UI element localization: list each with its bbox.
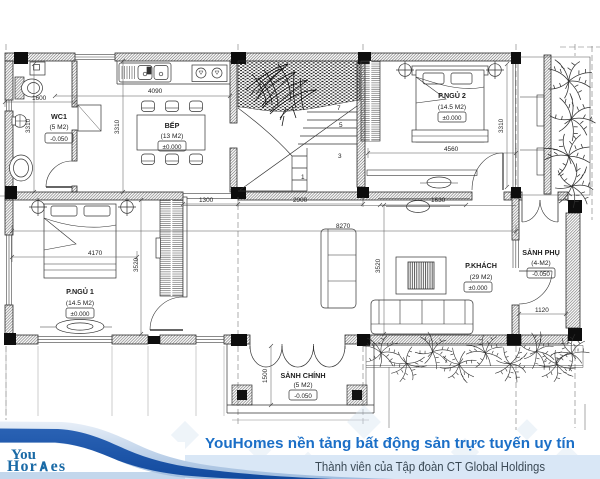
svg-text:1600: 1600 <box>32 95 47 102</box>
svg-text:(5 M2): (5 M2) <box>49 124 68 131</box>
svg-text:-0.050: -0.050 <box>50 136 68 143</box>
svg-text:(14.5 M2): (14.5 M2) <box>66 300 94 307</box>
svg-text:4090: 4090 <box>148 88 163 95</box>
svg-text:±0.000: ±0.000 <box>163 144 182 151</box>
svg-text:4560: 4560 <box>444 146 459 153</box>
svg-text:P.NGỦ 1: P.NGỦ 1 <box>66 287 94 296</box>
svg-text:±0.000: ±0.000 <box>469 285 488 292</box>
svg-text:SẢNH PHỤ: SẢNH PHỤ <box>522 248 560 257</box>
svg-text:3: 3 <box>338 153 342 160</box>
svg-text:(4-M2): (4-M2) <box>531 260 550 267</box>
svg-text:(13 M2): (13 M2) <box>161 133 184 140</box>
svg-text:3520: 3520 <box>133 257 140 272</box>
svg-text:5: 5 <box>339 122 343 129</box>
svg-text:BẾP: BẾP <box>165 120 180 130</box>
svg-text:3520: 3520 <box>375 258 382 273</box>
svg-text:-0.050: -0.050 <box>532 271 550 278</box>
svg-text:3310: 3310 <box>114 119 121 134</box>
svg-text:8270: 8270 <box>336 223 351 230</box>
svg-text:4170: 4170 <box>88 250 103 257</box>
svg-text:Thành viên của Tập đoàn CT Glo: Thành viên của Tập đoàn CT Global Holdin… <box>315 459 545 474</box>
svg-text:±0.000: ±0.000 <box>71 311 90 318</box>
svg-text:(29 M2): (29 M2) <box>470 274 493 281</box>
svg-text:WC1: WC1 <box>51 112 67 121</box>
svg-text:1500: 1500 <box>262 368 269 383</box>
svg-text:1300: 1300 <box>199 197 214 204</box>
svg-text:(5 M2): (5 M2) <box>293 382 312 389</box>
svg-text:-0.050: -0.050 <box>294 393 312 400</box>
svg-text:(14.5 M2): (14.5 M2) <box>438 104 466 111</box>
svg-text:3310: 3310 <box>25 118 32 133</box>
svg-text:3310: 3310 <box>498 118 505 133</box>
svg-text:2900: 2900 <box>293 197 308 204</box>
svg-text:P.KHÁCH: P.KHÁCH <box>465 261 497 270</box>
svg-text:±0.000: ±0.000 <box>443 115 462 122</box>
svg-text:1: 1 <box>301 174 305 181</box>
svg-text:YouHomes nền tảng bất động sản: YouHomes nền tảng bất động sản trực tuyế… <box>205 435 575 452</box>
svg-text:1630: 1630 <box>431 197 446 204</box>
svg-text:7: 7 <box>337 105 341 112</box>
svg-text:SẢNH CHÍNH: SẢNH CHÍNH <box>280 371 325 380</box>
svg-text:1120: 1120 <box>535 307 549 314</box>
svg-text:P.NGỦ 2: P.NGỦ 2 <box>438 91 466 100</box>
svg-text:Hor∧es: Hor∧es <box>7 458 66 475</box>
